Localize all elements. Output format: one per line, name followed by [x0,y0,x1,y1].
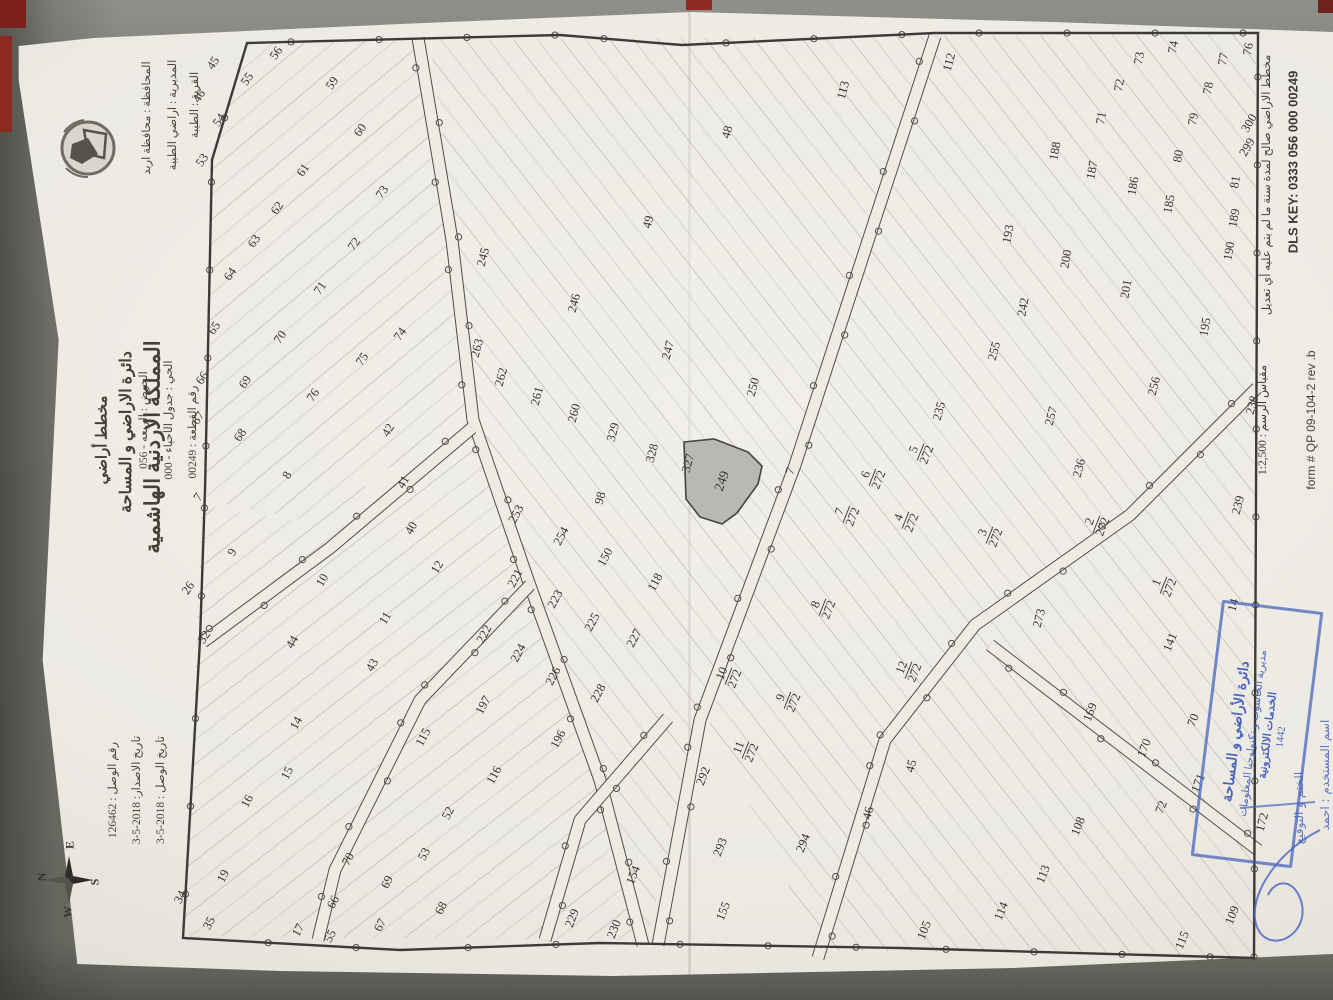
parcel-label: 73 [1131,51,1147,66]
field-parcel-no: رقم القطعة : 00249 [185,386,199,479]
dls-logo [54,114,122,182]
svg-text:81: 81 [1227,175,1243,190]
field-directorate: المديرية : اراضي الطيبة [165,60,179,171]
field-basin: الحوض : الربعه - 056 [136,371,150,469]
parcel-label: 77 [1215,52,1231,67]
svg-text:45: 45 [204,54,223,72]
compass-north: N [35,873,50,882]
svg-text:71: 71 [1093,111,1109,126]
doc-type-title: مخطط أراضي [93,396,112,485]
svg-text:26: 26 [179,579,198,597]
parcel-label: 7 [190,490,205,503]
parcel-label: 293 [710,836,730,859]
svg-text:73: 73 [1131,51,1147,66]
handwritten-signature-squiggle [1180,800,1333,1000]
form-number: form # QP 09-104-2 rev .b [1304,350,1318,489]
parcel-label: 72 [1111,78,1127,93]
parcel-label: 71 [1093,111,1109,126]
department-title: دائرة الاراضي و المساحة [116,351,136,513]
cadastral-map: 4555564654535960616263646570717273747576… [0,0,1333,1000]
stamp-year: 1442 [1274,726,1287,748]
parcel-label: 45 [204,54,223,72]
field-receipt-date: تاريخ الوصل : 2018-5-3 [153,736,167,844]
compass-west: W [61,906,76,918]
parcel-label: 81 [1227,175,1243,190]
dls-key: DLS KEY: 0333 056 000 00249 [1286,71,1301,254]
svg-text:7: 7 [190,490,205,503]
compass-south: S [88,879,103,886]
parcel-label: 53 [193,151,212,169]
field-receipt-no: رقم الوصل : 126462 [105,742,119,838]
parcel-label: 78 [1200,81,1216,96]
photo-backdrop: 4555564654535960616263646570717273747576… [0,0,1333,1000]
field-governorate: المحافظة : محافظة اربد [139,61,153,174]
svg-text:77: 77 [1215,52,1231,67]
parcel-label: 26 [179,579,198,597]
validity-note: مخطط الاراضي صالح لمدة سنة ما لم يتم علي… [1259,55,1273,316]
svg-text:80: 80 [1170,149,1186,164]
svg-text:53: 53 [193,151,212,169]
svg-text:72: 72 [1111,78,1127,93]
svg-text:293: 293 [710,836,730,859]
svg-text:79: 79 [1185,112,1201,127]
svg-text:78: 78 [1200,81,1216,96]
parcel-label: 80 [1170,149,1186,164]
svg-text:76: 76 [1240,42,1256,57]
field-issue-date: تاريخ الاصدار: 2018-5-3 [129,736,143,844]
parcel-label: 76 [1240,42,1256,57]
scale-label: مقياس الرسم : 1:2,500 [1255,365,1269,475]
compass-east: E [63,841,78,849]
svg-text:155: 155 [713,900,733,923]
parcel-label: 155 [713,900,733,923]
field-quarter: الحي : جدول الأحياء - 000 [161,360,175,479]
parcel-label: 79 [1185,112,1201,127]
field-village: القرية : الطيبة [187,72,201,138]
